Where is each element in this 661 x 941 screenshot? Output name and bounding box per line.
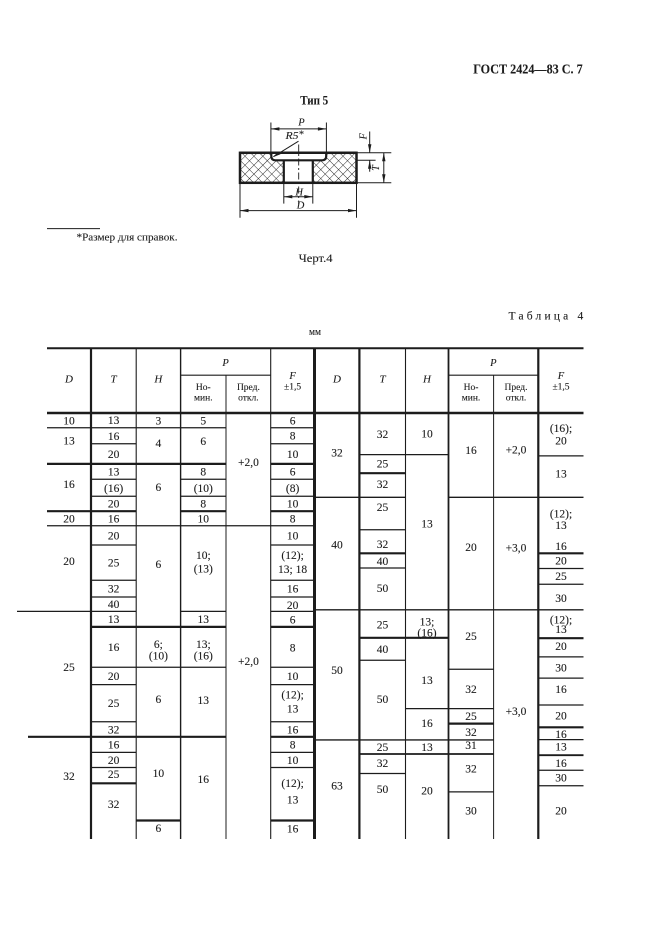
svg-text:13;: 13; [196,639,211,651]
svg-text:10: 10 [153,768,165,780]
svg-text:25: 25 [465,631,477,643]
svg-text:32: 32 [108,724,120,736]
svg-text:20: 20 [108,755,120,767]
svg-text:H: H [153,374,163,386]
svg-text:D: D [296,201,305,212]
svg-text:13: 13 [421,675,433,687]
svg-text:6: 6 [290,415,296,427]
svg-text:(16): (16) [417,628,436,640]
svg-text:30: 30 [555,773,567,785]
svg-text:16: 16 [108,431,120,443]
svg-text:6: 6 [156,694,162,706]
svg-text:16: 16 [287,584,299,596]
svg-text:*Размер для справок.: *Размер для справок. [77,232,178,243]
svg-text:16: 16 [421,718,433,730]
svg-text:H: H [422,374,432,386]
svg-text:13: 13 [555,742,567,754]
svg-text:13: 13 [63,436,75,448]
svg-text:+3,0: +3,0 [506,543,527,555]
svg-text:32: 32 [377,539,389,551]
svg-text:откл.: откл. [506,394,527,404]
svg-text:6: 6 [290,467,296,479]
svg-text:6;: 6; [154,639,163,651]
svg-text:P: P [297,118,305,129]
svg-text:6: 6 [290,615,296,627]
svg-text:6: 6 [200,436,206,448]
svg-text:10: 10 [287,755,299,767]
svg-text:13: 13 [198,614,210,626]
svg-text:8: 8 [200,499,206,511]
svg-text:10: 10 [287,671,299,683]
svg-text:32: 32 [331,448,343,460]
svg-text:8: 8 [290,643,296,655]
svg-text:25: 25 [555,571,567,583]
svg-text:+3,0: +3,0 [506,706,527,718]
svg-text:16: 16 [287,823,299,835]
svg-text:25: 25 [377,459,389,471]
svg-text:20: 20 [63,514,75,526]
svg-text:30: 30 [465,806,477,818]
svg-text:25: 25 [377,502,389,514]
svg-text:40: 40 [377,556,389,568]
svg-text:20: 20 [555,711,567,723]
svg-text:6: 6 [156,823,162,835]
svg-text:20: 20 [108,449,120,461]
svg-text:ГОСТ 2424—83 С. 7: ГОСТ 2424—83 С. 7 [473,63,583,78]
svg-text:8: 8 [290,740,296,752]
svg-text:30: 30 [555,593,567,605]
svg-text:13: 13 [287,704,299,716]
svg-text:16: 16 [63,479,75,491]
svg-text:25: 25 [63,662,75,674]
svg-text:±1,5: ±1,5 [284,383,301,393]
svg-text:32: 32 [465,764,477,776]
svg-text:13: 13 [421,742,433,754]
svg-text:20: 20 [555,436,567,448]
svg-text:20: 20 [465,542,477,554]
svg-text:40: 40 [377,644,389,656]
svg-text:13: 13 [108,467,120,479]
svg-text:32: 32 [465,684,477,696]
svg-text:16: 16 [198,774,210,786]
svg-text:мин.: мин. [194,394,213,404]
svg-text:13: 13 [108,614,120,626]
svg-text:13: 13 [555,624,567,636]
svg-text:40: 40 [331,540,343,552]
svg-text:13: 13 [555,469,567,481]
svg-text:20: 20 [108,671,120,683]
svg-text:5: 5 [200,415,206,427]
svg-text:20: 20 [555,556,567,568]
svg-text:Черт.4: Черт.4 [299,253,333,265]
svg-text:T: T [371,164,382,171]
svg-text:+2,0: +2,0 [238,457,259,469]
svg-text:D: D [332,374,341,386]
svg-text:(12);: (12); [281,778,303,790]
svg-text:+2,0: +2,0 [506,445,527,457]
svg-text:8: 8 [290,514,296,526]
svg-text:50: 50 [331,665,343,677]
svg-text:R5: R5 [284,131,298,142]
svg-text:T: T [379,374,386,386]
svg-text:20: 20 [421,786,433,798]
svg-text:50: 50 [377,784,389,796]
svg-text:16: 16 [108,514,120,526]
svg-text:10: 10 [421,429,433,441]
svg-text:16: 16 [287,724,299,736]
svg-text:P: P [489,358,497,369]
svg-text:D: D [64,374,73,386]
svg-text:6: 6 [156,482,162,494]
svg-text:25: 25 [465,711,477,723]
svg-text:Пред.: Пред. [505,383,528,393]
svg-text:(8): (8) [286,483,300,495]
svg-text:63: 63 [331,781,343,793]
svg-text:10;: 10; [196,550,211,562]
svg-text:13: 13 [287,795,299,807]
svg-text:13: 13 [198,695,210,707]
svg-text:13: 13 [108,415,120,427]
svg-text:T: T [111,374,118,386]
svg-text:16: 16 [555,758,567,770]
svg-text:8: 8 [290,431,296,443]
svg-text:F: F [288,371,296,382]
svg-text:32: 32 [108,584,120,596]
svg-text:20: 20 [63,556,75,568]
svg-text:32: 32 [377,479,389,491]
svg-text:10: 10 [63,415,75,427]
svg-text:20: 20 [555,641,567,653]
svg-text:мм: мм [309,327,321,338]
svg-text:4: 4 [156,438,162,450]
svg-text:20: 20 [555,806,567,818]
svg-text:16: 16 [555,541,567,553]
svg-text:+2,0: +2,0 [238,656,259,668]
svg-text:25: 25 [108,769,120,781]
svg-text:13; 18: 13; 18 [278,564,307,576]
svg-text:H: H [294,187,304,198]
svg-text:10: 10 [287,530,299,542]
svg-text:13: 13 [555,520,567,532]
svg-text:32: 32 [465,727,477,739]
svg-text:(16): (16) [194,651,213,663]
svg-text:20: 20 [287,600,299,612]
svg-text:мин.: мин. [462,394,481,404]
svg-text:Но-: Но- [464,383,479,393]
svg-text:16: 16 [555,684,567,696]
svg-text:10: 10 [287,449,299,461]
svg-text:20: 20 [108,499,120,511]
svg-text:16: 16 [555,729,567,741]
svg-text:25: 25 [377,620,389,632]
svg-text:откл.: откл. [238,394,259,404]
svg-text:(16);: (16); [550,423,572,435]
svg-text:25: 25 [377,742,389,754]
svg-text:P: P [221,358,229,369]
svg-text:25: 25 [108,558,120,570]
svg-text:Таблица 4: Таблица 4 [509,311,587,323]
svg-text:±1,5: ±1,5 [552,383,569,393]
svg-text:32: 32 [108,799,120,811]
svg-text:(10): (10) [149,651,168,663]
svg-text:(12);: (12); [281,550,303,562]
svg-text:31: 31 [465,740,477,752]
svg-text:16: 16 [108,642,120,654]
svg-text:50: 50 [377,583,389,595]
svg-text:3: 3 [156,415,162,427]
svg-text:40: 40 [108,599,120,611]
svg-text:*: * [299,130,304,141]
svg-text:6: 6 [156,559,162,571]
svg-text:32: 32 [63,771,75,783]
svg-text:10: 10 [198,514,210,526]
svg-text:25: 25 [108,698,120,710]
svg-text:8: 8 [200,467,206,479]
svg-text:16: 16 [465,445,477,457]
svg-text:13: 13 [421,519,433,531]
svg-text:Пред.: Пред. [237,383,260,393]
svg-text:30: 30 [555,663,567,675]
svg-text:32: 32 [377,758,389,770]
svg-text:Тип 5: Тип 5 [300,94,328,108]
svg-text:F: F [358,132,369,140]
svg-text:20: 20 [108,530,120,542]
svg-text:(12);: (12); [281,690,303,702]
svg-text:(13): (13) [194,564,213,576]
svg-text:50: 50 [377,694,389,706]
svg-text:32: 32 [377,429,389,441]
svg-text:F: F [557,371,565,382]
svg-text:(12);: (12); [550,509,572,521]
svg-text:(16): (16) [104,483,123,495]
svg-text:(10): (10) [194,483,213,495]
svg-text:10: 10 [287,499,299,511]
svg-text:16: 16 [108,740,120,752]
svg-text:Но-: Но- [196,383,211,393]
